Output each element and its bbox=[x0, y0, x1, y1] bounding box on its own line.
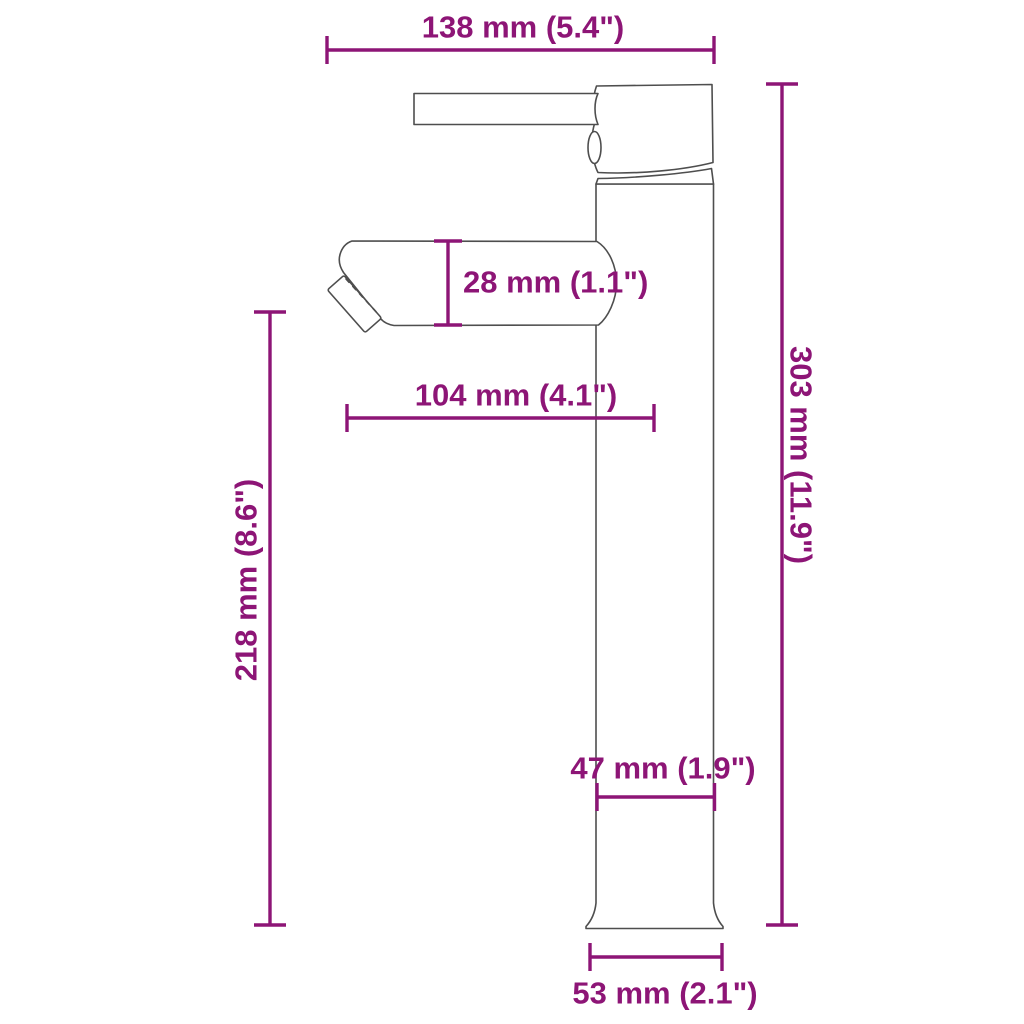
label-spout-reach: 104 mm (4.1") bbox=[415, 380, 618, 411]
label-body-width: 47 mm (1.9") bbox=[570, 753, 755, 784]
dimension-line-base-width bbox=[590, 943, 722, 971]
label-base-width: 53 mm (2.1") bbox=[572, 978, 757, 1009]
faucet-line-art bbox=[0, 0, 1024, 1024]
dimension-diagram: 138 mm (5.4") 303 mm (11.9") 218 mm (8.6… bbox=[0, 0, 1024, 1024]
label-total-width: 138 mm (5.4") bbox=[422, 12, 625, 43]
dimension-lines bbox=[254, 36, 798, 971]
label-overall-height: 303 mm (11.9") bbox=[786, 346, 817, 564]
faucet-drawing bbox=[327, 85, 723, 929]
faucet-head bbox=[592, 85, 713, 173]
label-spout-thickness: 28 mm (1.1") bbox=[463, 267, 648, 298]
label-spout-height: 218 mm (8.6") bbox=[231, 479, 262, 682]
faucet-handle-lever bbox=[414, 94, 598, 125]
handle-joint-ellipse bbox=[588, 132, 601, 164]
